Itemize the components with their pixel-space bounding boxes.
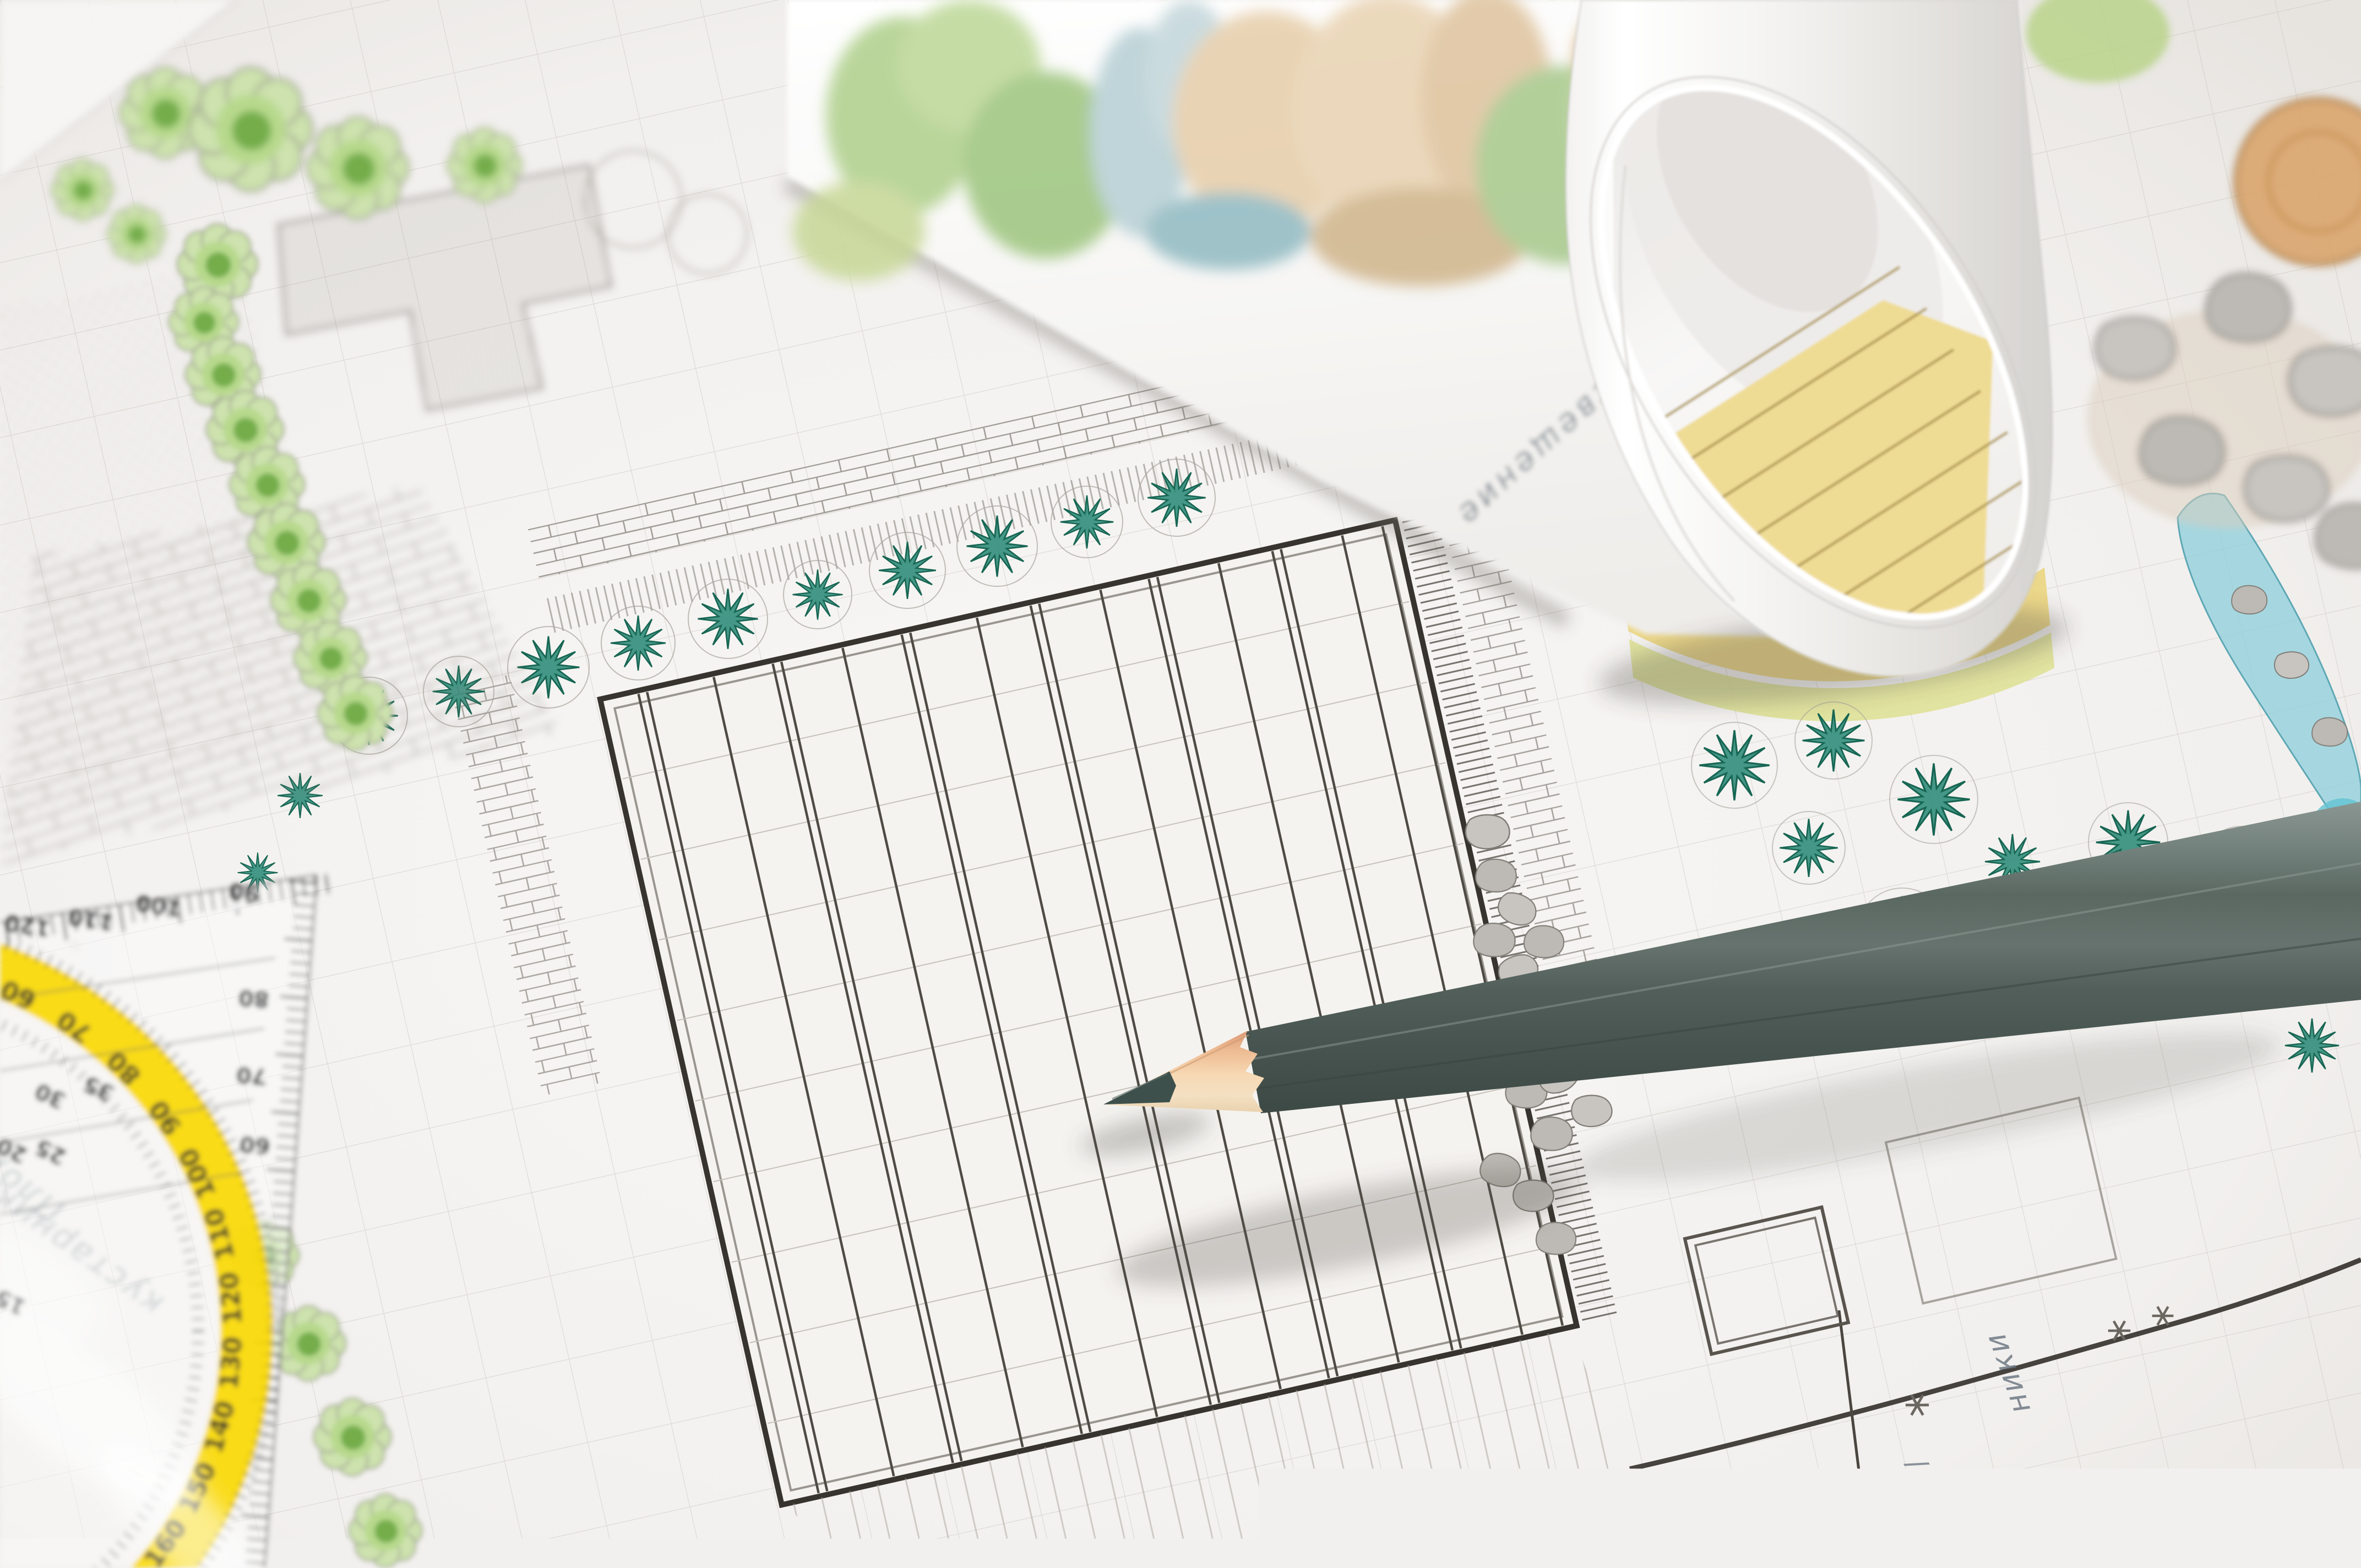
photo-landscape-plans: ники га / Освещение bbox=[0, 0, 2361, 1568]
scene: ники га / Освещение bbox=[0, 0, 2361, 1568]
